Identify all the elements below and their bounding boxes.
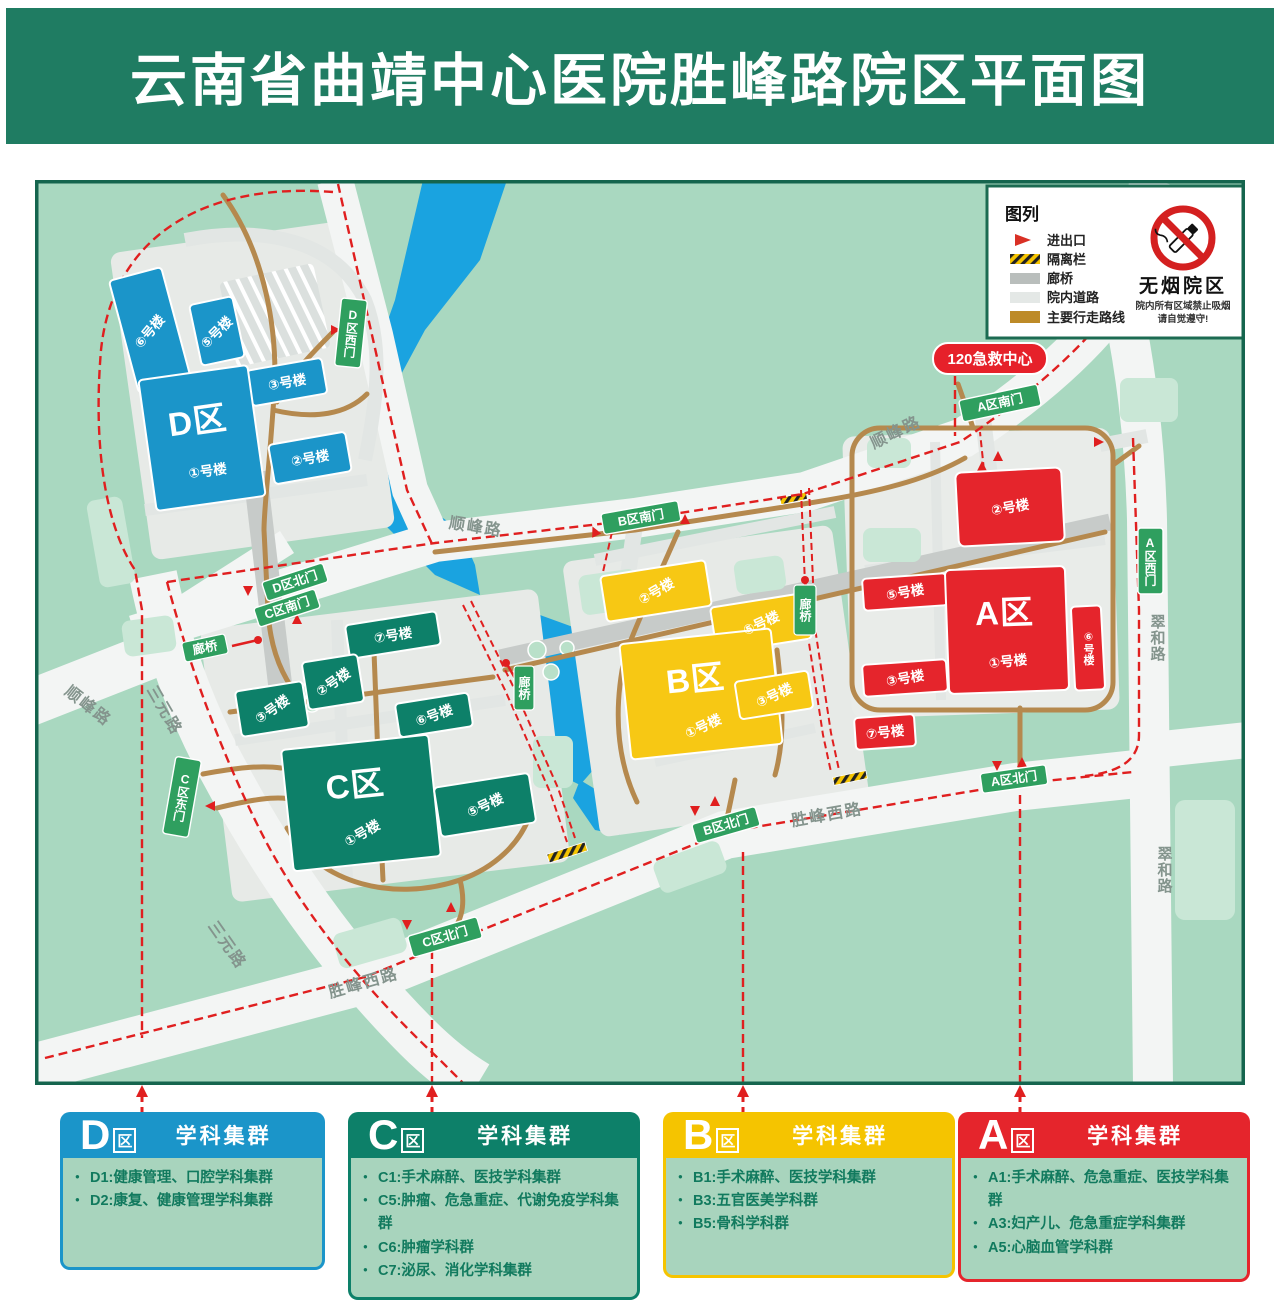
panel-zone-d: D 区 学科集群 D1:健康管理、口腔学科集群 D2:康复、健康管理学科集群	[60, 1112, 325, 1270]
panel-c-qu: 区	[401, 1128, 424, 1153]
zone-a-label: A区	[974, 593, 1034, 632]
legend-item: 主要行走路线	[1047, 310, 1125, 325]
panel-a-title: 学科集群	[1087, 1120, 1183, 1150]
panel-zone-c: C 区 学科集群 C1:手术麻醉、医技学科集群 C5:肿瘤、危急重症、代谢免疫学…	[348, 1112, 640, 1300]
legend: 图列 进出口 隔离栏 廊桥 院内道路 主要行走路线 无烟院区 院内所有区域禁止吸…	[987, 186, 1245, 338]
bridge-tag: 廊桥	[798, 597, 812, 623]
panel-a-letter: A	[978, 1114, 1008, 1156]
panel-item: B3:五官医美学科群	[678, 1190, 940, 1213]
panel-item: A1:手术麻醉、危急重症、医技学科集群	[973, 1167, 1235, 1213]
road-swatch-icon	[1010, 292, 1040, 303]
emergency-label: 120急救中心	[933, 343, 1047, 374]
panel-item: B1:手术麻醉、医技学科集群	[678, 1167, 940, 1190]
panel-zone-b: B 区 学科集群 B1:手术麻醉、医技学科集群 B3:五官医美学科群 B5:骨科…	[663, 1112, 955, 1278]
bridge-swatch-icon	[1010, 273, 1040, 284]
road-label-cuihe: 翠和路	[1149, 614, 1166, 662]
campus-map: ⑥号楼 ⑤号楼 ③号楼 D区 ①号楼 ②号楼 ⑦号楼 ②号楼 ③号楼 ⑥号楼 C…	[35, 180, 1245, 1085]
emergency-text: 120急救中心	[947, 350, 1032, 368]
panel-c-letter: C	[368, 1114, 398, 1156]
panel-item: B5:骨科学科群	[678, 1213, 940, 1236]
page-title: 云南省曲靖中心医院胜峰路院区平面图	[130, 35, 1150, 117]
panel-connectors	[0, 1085, 1280, 1113]
panel-item: A5:心脑血管学科群	[973, 1237, 1235, 1260]
panel-d-qu: 区	[113, 1128, 136, 1153]
panel-b-letter: B	[683, 1114, 713, 1156]
panel-item: C1:手术麻醉、医技学科集群	[363, 1167, 625, 1190]
panel-item: D1:健康管理、口腔学科集群	[75, 1167, 310, 1190]
panel-d-header: D 区 学科集群	[60, 1112, 325, 1158]
legend-title: 图列	[1005, 204, 1039, 224]
panel-item: C6:肿瘤学科群	[363, 1237, 625, 1260]
legend-item: 进出口	[1047, 233, 1086, 248]
fence-swatch-icon	[1010, 254, 1040, 264]
panel-d-body: D1:健康管理、口腔学科集群 D2:康复、健康管理学科集群	[60, 1158, 325, 1270]
panel-b-title: 学科集群	[792, 1120, 888, 1150]
panel-b-header: B 区 学科集群	[663, 1112, 955, 1158]
legend-item: 院内道路	[1047, 290, 1100, 305]
panel-b-body: B1:手术麻醉、医技学科集群 B3:五官医美学科群 B5:骨科学科群	[663, 1158, 955, 1278]
no-smoking-icon	[1153, 208, 1212, 267]
legend-item: 廊桥	[1047, 271, 1074, 286]
panel-a-body: A1:手术麻醉、危急重症、医技学科集群 A3:妇产儿、危急重症学科集群 A5:心…	[958, 1158, 1250, 1282]
no-smoking-line1: 院内所有区域禁止吸烟	[1135, 300, 1230, 312]
panel-a-qu: 区	[1011, 1128, 1034, 1153]
no-smoking-title: 无烟院区	[1139, 274, 1227, 297]
panel-item: D2:康复、健康管理学科集群	[75, 1190, 310, 1213]
route-swatch-icon	[1010, 311, 1040, 323]
no-smoking-line2: 请自觉遵守!	[1158, 313, 1209, 325]
legend-item: 隔离栏	[1047, 252, 1086, 267]
panel-a-header: A 区 学科集群	[958, 1112, 1250, 1158]
bridge-tag: 廊桥	[517, 675, 531, 701]
title-banner: 云南省曲靖中心医院胜峰路院区平面图	[6, 8, 1274, 144]
zone-c-label: C区	[324, 764, 386, 807]
building-label: ⑥号楼	[1082, 631, 1095, 667]
panel-d-title: 学科集群	[176, 1120, 272, 1150]
panel-d-letter: D	[80, 1114, 110, 1156]
road-label-cuihe: 翠和路	[1156, 846, 1173, 894]
zone-b-label: B区	[664, 658, 726, 701]
panel-c-title: 学科集群	[477, 1120, 573, 1150]
panel-zone-a: A 区 学科集群 A1:手术麻醉、危急重症、医技学科集群 A3:妇产儿、危急重症…	[958, 1112, 1250, 1282]
panel-c-header: C 区 学科集群	[348, 1112, 640, 1158]
panel-item: C5:肿瘤、危急重症、代谢免疫学科集群	[363, 1190, 625, 1236]
gate-a-west: A区西门	[1143, 536, 1157, 587]
panel-item: A3:妇产儿、危急重症学科集群	[973, 1213, 1235, 1236]
panel-b-qu: 区	[716, 1128, 739, 1153]
panel-item: C7:泌尿、消化学科集群	[363, 1260, 625, 1283]
panel-c-body: C1:手术麻醉、医技学科集群 C5:肿瘤、危急重症、代谢免疫学科集群 C6:肿瘤…	[348, 1158, 640, 1300]
